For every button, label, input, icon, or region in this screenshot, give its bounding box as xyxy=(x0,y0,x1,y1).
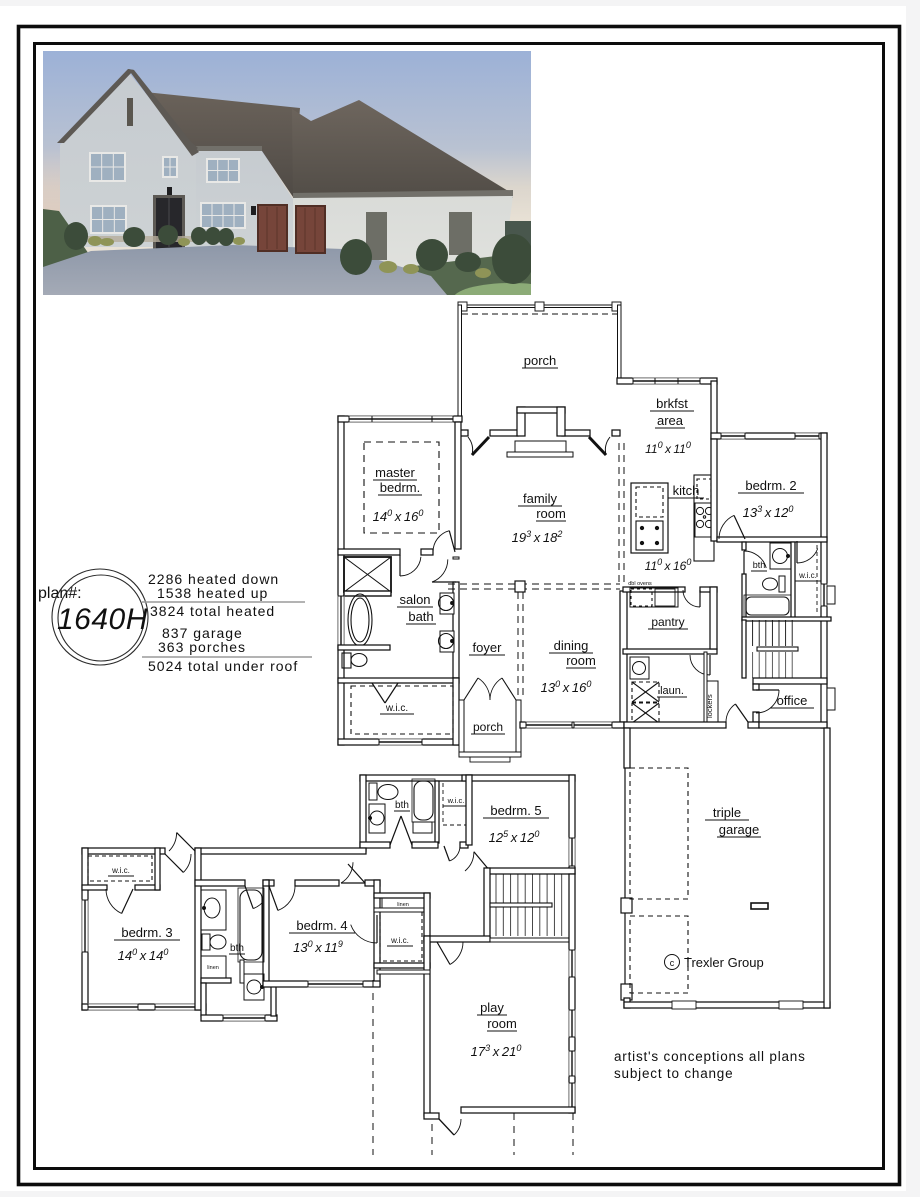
svg-text:bth: bth xyxy=(395,800,409,811)
svg-text:3824 total heated: 3824 total heated xyxy=(150,603,275,619)
svg-text:office: office xyxy=(777,693,808,708)
svg-text:140 x 160: 140 x 160 xyxy=(373,508,424,524)
svg-text:laun.: laun. xyxy=(660,685,684,697)
svg-text:w.i.c.: w.i.c. xyxy=(385,703,408,714)
svg-text:area: area xyxy=(657,413,684,428)
svg-text:w.i.c.: w.i.c. xyxy=(447,796,465,805)
svg-text:c: c xyxy=(670,958,675,968)
svg-text:salon: salon xyxy=(399,592,430,607)
svg-text:bth: bth xyxy=(753,560,766,570)
svg-text:1538 heated up: 1538 heated up xyxy=(157,585,268,601)
svg-text:room: room xyxy=(536,506,566,521)
svg-text:110 x 160: 110 x 160 xyxy=(645,557,692,573)
svg-text:play: play xyxy=(480,1000,504,1015)
svg-text:140 x 140: 140 x 140 xyxy=(118,947,169,963)
svg-text:125 x 120: 125 x 120 xyxy=(489,829,540,845)
svg-text:lockers: lockers xyxy=(705,694,714,718)
svg-text:garage: garage xyxy=(719,822,759,837)
svg-text:363 porches: 363 porches xyxy=(158,639,246,655)
svg-text:133 x 120: 133 x 120 xyxy=(743,504,794,520)
svg-text:linen: linen xyxy=(207,965,219,971)
svg-text:dbl ovens: dbl ovens xyxy=(628,581,652,587)
svg-text:173 x 210: 173 x 210 xyxy=(471,1043,522,1059)
svg-text:porch: porch xyxy=(473,720,503,734)
svg-text:pantry: pantry xyxy=(651,615,684,629)
svg-text:bedrm. 5: bedrm. 5 xyxy=(490,803,541,818)
svg-text:Trexler Group: Trexler Group xyxy=(684,955,764,970)
svg-text:foyer: foyer xyxy=(473,640,503,655)
svg-text:5024 total under roof: 5024 total under roof xyxy=(148,658,298,674)
svg-text:porch: porch xyxy=(524,353,557,368)
svg-text:kitch: kitch xyxy=(673,483,700,498)
svg-text:dining: dining xyxy=(554,638,589,653)
svg-text:bedrm. 2: bedrm. 2 xyxy=(745,478,796,493)
svg-text:subject to change: subject to change xyxy=(614,1066,733,1081)
svg-text:artist's conceptions all plans: artist's conceptions all plans xyxy=(614,1049,806,1064)
svg-text:bedrm. 3: bedrm. 3 xyxy=(121,925,172,940)
svg-text:master: master xyxy=(375,465,415,480)
svg-text:room: room xyxy=(566,653,596,668)
svg-text:brkfst: brkfst xyxy=(656,396,688,411)
svg-text:130 x 160: 130 x 160 xyxy=(541,679,592,695)
svg-text:bath: bath xyxy=(408,609,433,624)
svg-text:bedrm. 4: bedrm. 4 xyxy=(296,918,347,933)
svg-text:1640H: 1640H xyxy=(57,603,148,636)
svg-text:bedrm.: bedrm. xyxy=(380,480,420,495)
svg-text:plan#:: plan#: xyxy=(38,585,82,602)
svg-text:family: family xyxy=(523,491,557,506)
svg-text:110 x 110: 110 x 110 xyxy=(645,440,691,456)
svg-text:w.i.c.: w.i.c. xyxy=(111,866,130,875)
svg-text:193 x 182: 193 x 182 xyxy=(512,529,563,545)
svg-text:triple: triple xyxy=(713,805,741,820)
svg-text:w.i.c.: w.i.c. xyxy=(390,936,409,945)
svg-text:bth: bth xyxy=(230,943,244,954)
svg-text:room: room xyxy=(487,1016,517,1031)
svg-text:linen: linen xyxy=(397,902,409,908)
svg-text:130 x 119: 130 x 119 xyxy=(293,939,343,955)
svg-text:w.i.c.: w.i.c. xyxy=(798,571,817,580)
